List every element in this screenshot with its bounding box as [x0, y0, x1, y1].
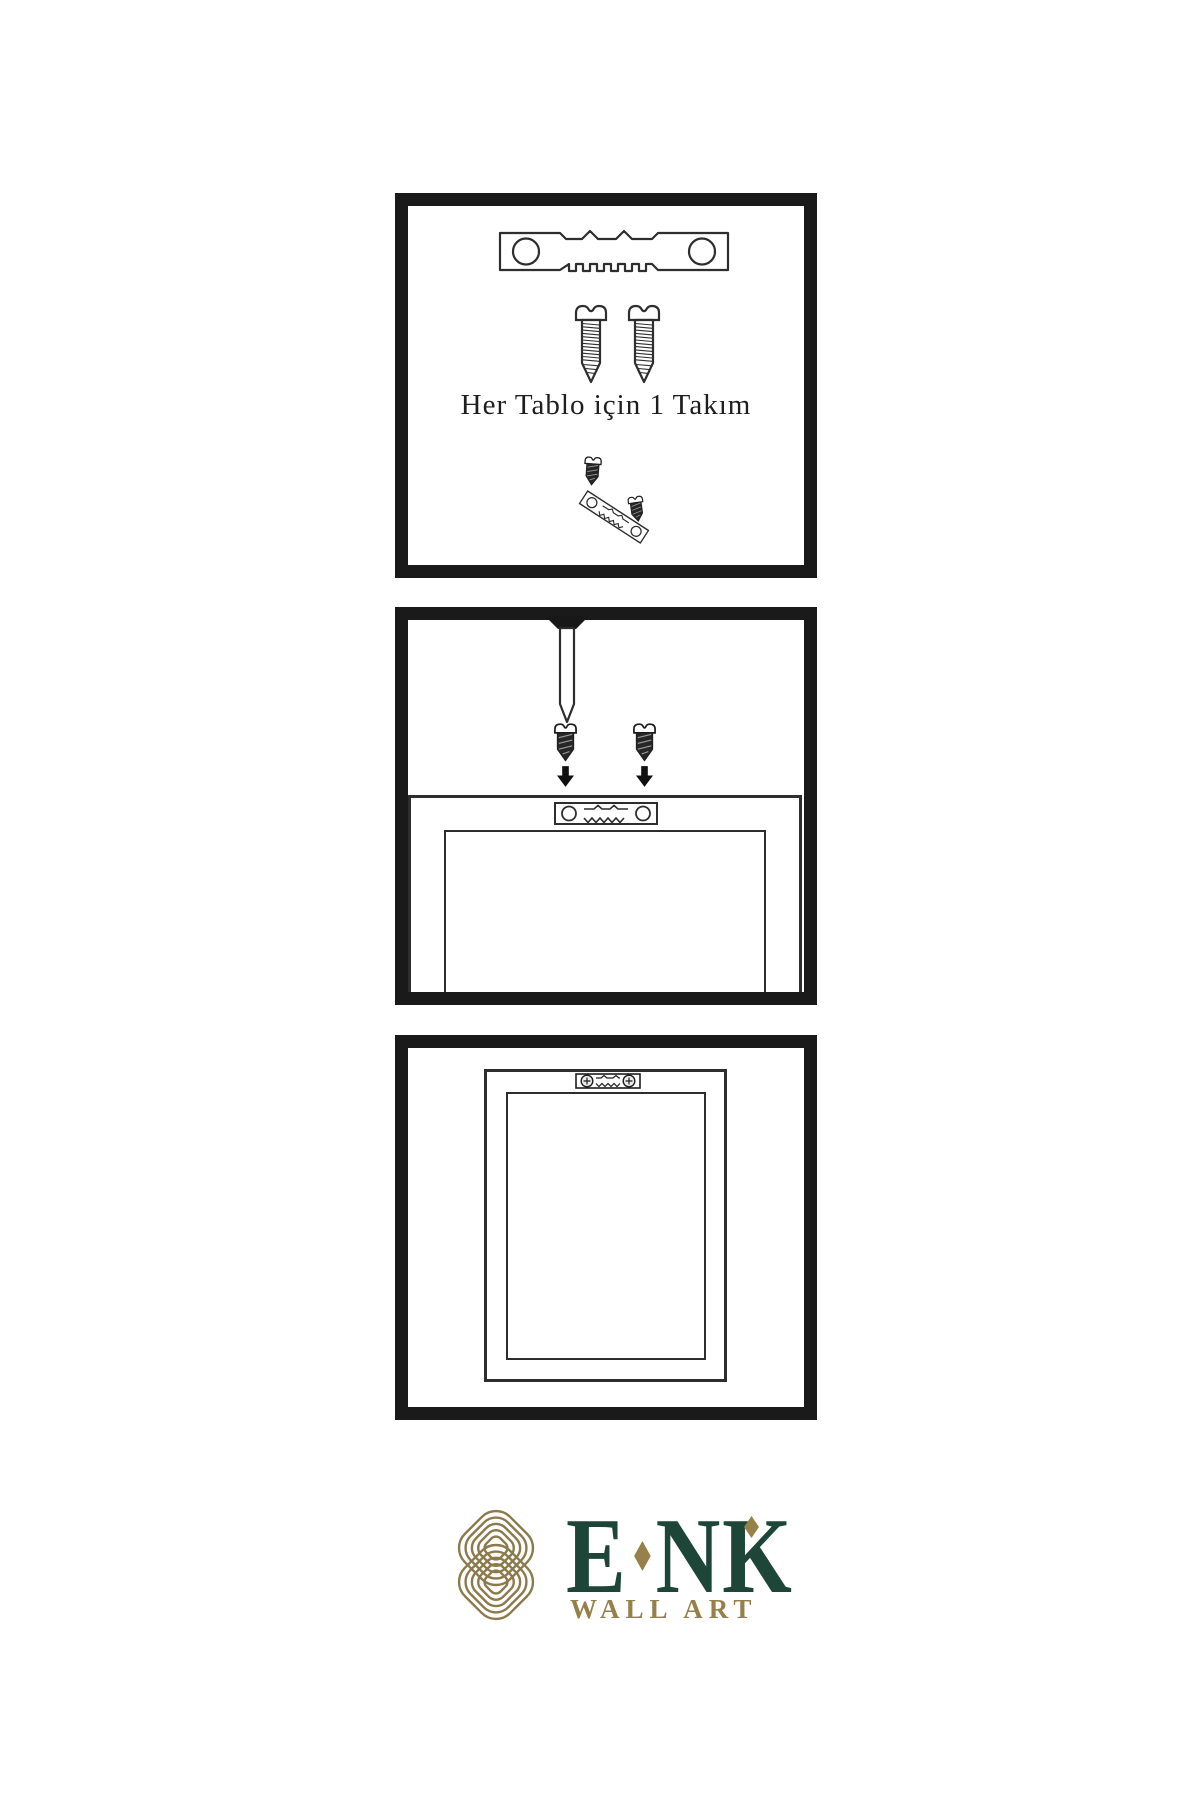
brand-tagline: WALL ART — [570, 1594, 757, 1625]
brand-diamond-icon — [634, 1541, 651, 1571]
kit-caption: Her Tablo için 1 Takım — [395, 389, 817, 422]
down-arrow-icon — [557, 766, 574, 787]
down-arrow-icon — [636, 766, 653, 787]
sawtooth-hanger-icon — [496, 224, 732, 280]
mounted-hanger-icon — [575, 1073, 641, 1089]
enk-knot-logo-icon — [436, 1497, 556, 1633]
sawtooth-hanger-on-frame-icon — [554, 802, 658, 825]
dark-screw-icon — [582, 451, 604, 489]
screw-icon — [574, 303, 608, 387]
instruction-sheet: Her Tablo için 1 Takım — [0, 0, 1200, 1800]
dark-screw-icon — [553, 721, 578, 762]
picture-frame-inner — [444, 830, 766, 992]
nail-icon — [544, 616, 590, 726]
dark-screw-icon — [632, 721, 657, 762]
picture-frame-inner — [506, 1092, 706, 1360]
screw-icon — [627, 303, 661, 387]
